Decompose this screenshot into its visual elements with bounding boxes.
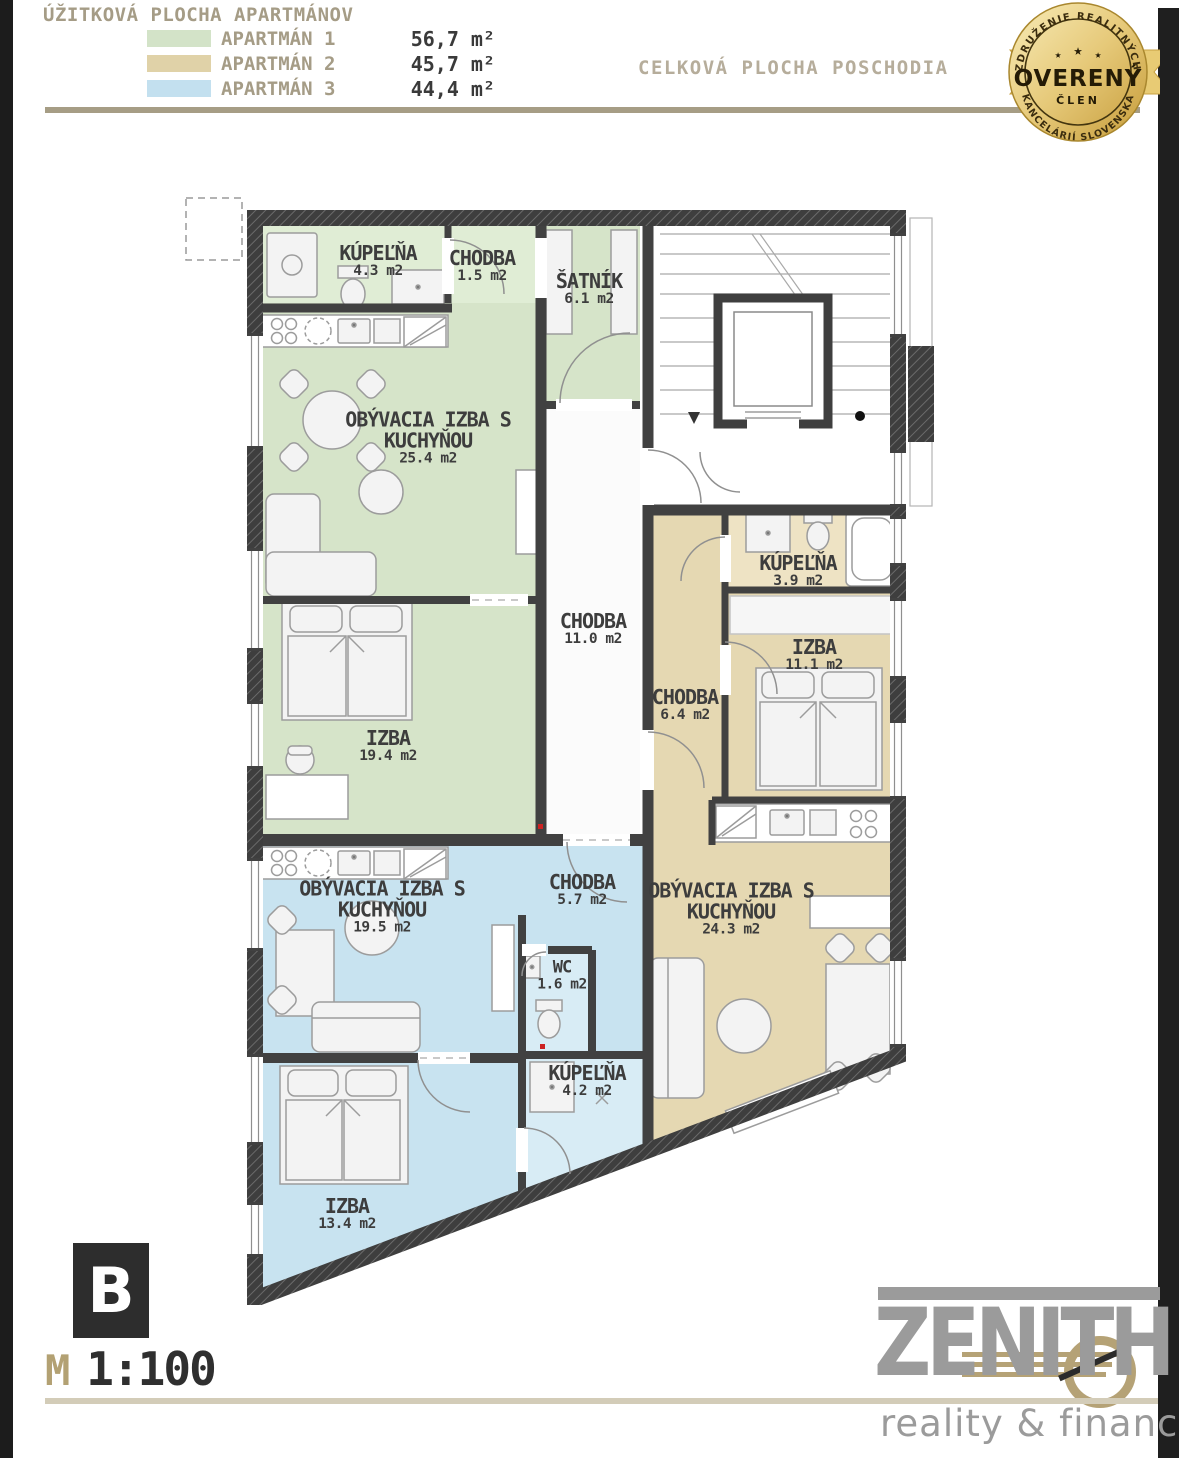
room-label-chodba-common: CHODBA11.0 m2 bbox=[560, 611, 626, 647]
left-edge-strip bbox=[0, 0, 13, 1458]
legend-title: ÚŽITKOVÁ PLOCHA APARTMÁNOV bbox=[43, 4, 495, 26]
window-left bbox=[247, 548, 263, 651]
room-label-chodba-15: CHODBA1.5 m2 bbox=[449, 248, 515, 284]
legend-row-apartman-2: APARTMÁN 2 45,7 m² bbox=[43, 51, 495, 76]
apartman-1-label: APARTMÁN 1 bbox=[221, 28, 335, 50]
header-divider bbox=[45, 107, 1140, 113]
star-icon: ★ bbox=[1095, 48, 1102, 61]
window-right bbox=[890, 233, 906, 337]
room-label-izba-3: IZBA13.4 m2 bbox=[318, 1196, 376, 1232]
window-right bbox=[890, 598, 906, 679]
legend: ÚŽITKOVÁ PLOCHA APARTMÁNOV APARTMÁN 1 56… bbox=[43, 4, 495, 101]
window-left bbox=[247, 1054, 263, 1145]
stair-dot-icon bbox=[855, 411, 865, 421]
red-marker bbox=[538, 824, 543, 829]
room-label-chodba-64: CHODBA6.4 m2 bbox=[652, 687, 718, 723]
pouf-icon bbox=[717, 999, 771, 1053]
window-right bbox=[890, 450, 906, 507]
badge-main-text: OVERENÝ bbox=[1014, 64, 1143, 92]
tv-stand-icon bbox=[516, 470, 538, 554]
badge-sub-text: ČLEN bbox=[1056, 94, 1100, 107]
apartman-2-swatch bbox=[147, 55, 211, 72]
right-edge-strip bbox=[1158, 8, 1179, 1458]
scale-value: 1:100 bbox=[86, 1342, 214, 1396]
exterior-pillar bbox=[908, 346, 934, 442]
window-left bbox=[247, 858, 263, 951]
room-label-chodba-57: CHODBA5.7 m2 bbox=[549, 872, 615, 908]
stove-icon bbox=[374, 319, 400, 343]
apartman-1-area: 56,7 m² bbox=[411, 27, 495, 51]
star-icon: ★ bbox=[1073, 41, 1082, 59]
room-label-satnik: ŠATNÍK6.1 m2 bbox=[556, 271, 622, 307]
floorplan-drawing bbox=[175, 180, 940, 1350]
total-floor-area-label: CELKOVÁ PLOCHA POSCHODIA bbox=[638, 57, 949, 79]
stove-icon bbox=[374, 851, 400, 875]
window-left bbox=[247, 1202, 263, 1257]
red-marker bbox=[540, 1044, 545, 1049]
neighbor-dashed-outline bbox=[186, 198, 242, 260]
certification-badge: ZDRUŽENIE REALITNÝCH KANCELÁRIÍ SLOVENSK… bbox=[995, 0, 1160, 152]
scale-indicator: M 1:100 bbox=[45, 1342, 215, 1396]
room-label-kupelna-1: KÚPEĽŇA4.3 m2 bbox=[339, 243, 416, 279]
room-label-obyvacia-1: OBÝVACIA IZBA S KUCHYŇOU25.4 m2 bbox=[342, 410, 514, 467]
room-label-obyvacia-3: OBÝVACIA IZBA S KUCHYŇOU19.5 m2 bbox=[296, 879, 468, 936]
apartman-3-label: APARTMÁN 3 bbox=[221, 78, 335, 100]
window-left bbox=[247, 333, 263, 449]
window-right bbox=[890, 958, 906, 1047]
elevator bbox=[718, 298, 828, 424]
apartman-2-label: APARTMÁN 2 bbox=[221, 53, 335, 75]
scale-prefix: M bbox=[45, 1346, 70, 1395]
legend-row-apartman-3: APARTMÁN 3 44,4 m² bbox=[43, 76, 495, 101]
sofa-icon bbox=[266, 552, 376, 596]
apartman-2-area: 45,7 m² bbox=[411, 52, 495, 76]
room-label-kupelna-3: KÚPEĽŇA4.2 m2 bbox=[548, 1063, 625, 1099]
closet-icon bbox=[730, 596, 896, 634]
sideboard-icon bbox=[810, 896, 894, 928]
sofa-icon bbox=[650, 958, 704, 1098]
tv-stand-icon bbox=[492, 925, 514, 1011]
room-label-kupelna-2: KÚPEĽŇA3.9 m2 bbox=[759, 553, 836, 589]
washer-icon bbox=[267, 233, 317, 297]
apartman-3-area: 44,4 m² bbox=[411, 77, 495, 101]
elevator-cabin bbox=[734, 312, 812, 406]
room-label-izba-1: IZBA19.4 m2 bbox=[359, 728, 417, 764]
room-label-wc: WC1.6 m2 bbox=[537, 960, 586, 993]
legend-row-apartman-1: APARTMÁN 1 56,7 m² bbox=[43, 26, 495, 51]
desk-icon bbox=[266, 775, 348, 819]
section-badge: B bbox=[73, 1243, 149, 1338]
room-label-obyvacia-2: OBÝVACIA IZBA S KUCHYŇOU24.3 m2 bbox=[645, 881, 817, 938]
room-label-izba-2: IZBA11.1 m2 bbox=[785, 637, 843, 673]
window-right bbox=[890, 516, 906, 566]
apartman-3-swatch bbox=[147, 80, 211, 97]
window-right bbox=[890, 720, 906, 799]
floorplan-page: ÚŽITKOVÁ PLOCHA APARTMÁNOV APARTMÁN 1 56… bbox=[0, 0, 1179, 1458]
zenith-brand-subtitle: reality & finance bbox=[880, 1402, 1179, 1445]
apartman-1-swatch bbox=[147, 30, 211, 47]
window-left bbox=[247, 701, 263, 769]
sofa-icon bbox=[312, 1002, 420, 1052]
stove-icon bbox=[810, 810, 836, 835]
pouf-icon bbox=[359, 470, 403, 514]
room-hall64-apt2 bbox=[645, 510, 725, 845]
zenith-brand: ZENITH bbox=[874, 1297, 1170, 1391]
star-icon: ★ bbox=[1055, 48, 1062, 61]
section-letter: B bbox=[87, 1254, 134, 1327]
